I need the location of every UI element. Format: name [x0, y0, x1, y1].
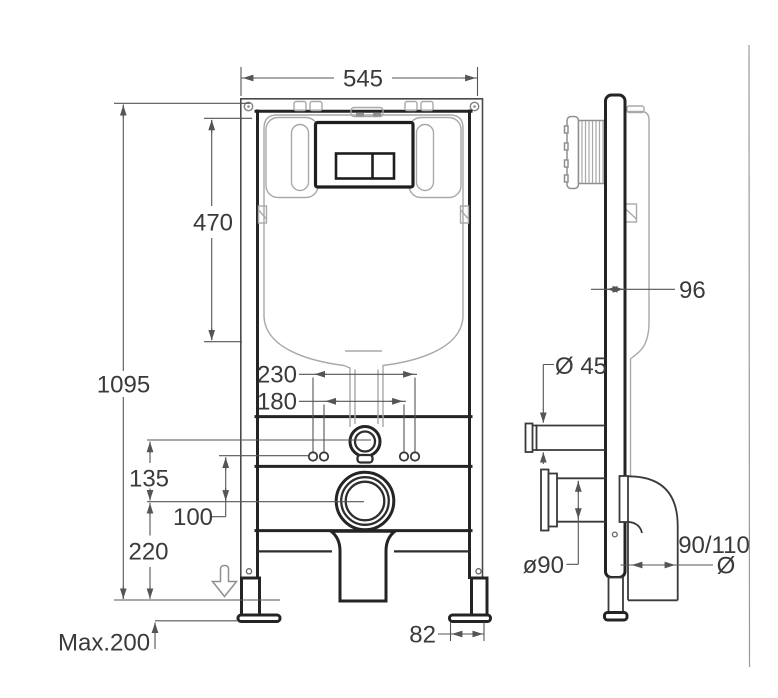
foot-plate: [238, 615, 280, 622]
flush-plate: [316, 123, 414, 188]
wall-line: [749, 45, 750, 667]
dim-label: Max.200: [58, 630, 150, 657]
dim-label: 90/110: [678, 532, 750, 559]
dim-flush-pipe-height: 135: [129, 440, 371, 501]
drain-socket-side: [541, 470, 606, 531]
actuator-shaft: [565, 117, 605, 189]
dim-label: 470: [193, 210, 233, 237]
flush-buttons: [336, 154, 394, 179]
bolt-icon: [309, 452, 317, 460]
foot-plate: [605, 613, 628, 621]
dim-waste-pipe: 90/110 Ø: [621, 532, 750, 580]
dim-label: 230: [257, 362, 297, 389]
foot-leg: [472, 578, 488, 616]
frame-hole-icon: [476, 569, 481, 574]
dim-label: 100: [173, 504, 213, 531]
dim-foot-plate: 82: [409, 622, 484, 649]
dim-label: 545: [343, 66, 383, 93]
dim-adjustable-feet: Max.200: [58, 621, 237, 657]
dim-label: Ø 45: [555, 353, 607, 380]
dim-flush-pipe-diameter: Ø 45: [543, 353, 607, 464]
foot-plate: [450, 615, 491, 622]
tank-profile: [625, 106, 650, 476]
bolt-icon: [400, 452, 408, 460]
tank-tab: [310, 102, 322, 111]
diameter-symbol: Ø: [717, 553, 736, 580]
floor-arrow-icon: [213, 566, 237, 597]
tank-clip: [259, 206, 469, 223]
leg-hole-icon: [612, 532, 617, 537]
drain-outlet: [331, 472, 395, 601]
installation-drawing: 545 1095 470 230 180: [0, 0, 778, 698]
tank-slot: [292, 125, 309, 191]
dim-cistern-height: 470: [193, 118, 252, 341]
ribs: [582, 121, 603, 183]
dim-label: 135: [129, 466, 169, 493]
dim-label: 96: [679, 277, 706, 304]
dim-label: 220: [128, 539, 168, 566]
foot-leg: [609, 578, 624, 614]
frame-hole-icon: [246, 569, 251, 574]
bolt-icon: [411, 452, 419, 460]
drain-pipe: [331, 531, 395, 601]
waste-elbow: [620, 476, 678, 600]
flush-pipe-connection: [350, 427, 380, 463]
tank-slot: [417, 125, 434, 191]
tank-tab: [421, 102, 433, 111]
dim-label: 180: [257, 389, 297, 416]
dim-label: 82: [409, 622, 436, 649]
flush-pipe-side: [526, 424, 606, 453]
tank-tab: [294, 102, 306, 111]
foot-leg: [242, 578, 260, 616]
frame-column: [605, 95, 628, 620]
front-view: [213, 99, 491, 622]
bolt-icon: [320, 452, 328, 460]
dim-frame-width: 545: [241, 66, 478, 97]
dim-label: 1095: [97, 372, 150, 399]
dim-label: ø90: [523, 552, 564, 579]
tank-tab: [405, 102, 417, 111]
